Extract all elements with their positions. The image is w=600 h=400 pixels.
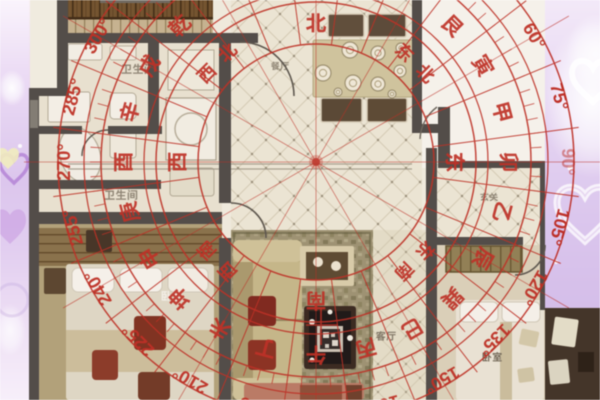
- svg-text:90°: 90°: [558, 148, 578, 175]
